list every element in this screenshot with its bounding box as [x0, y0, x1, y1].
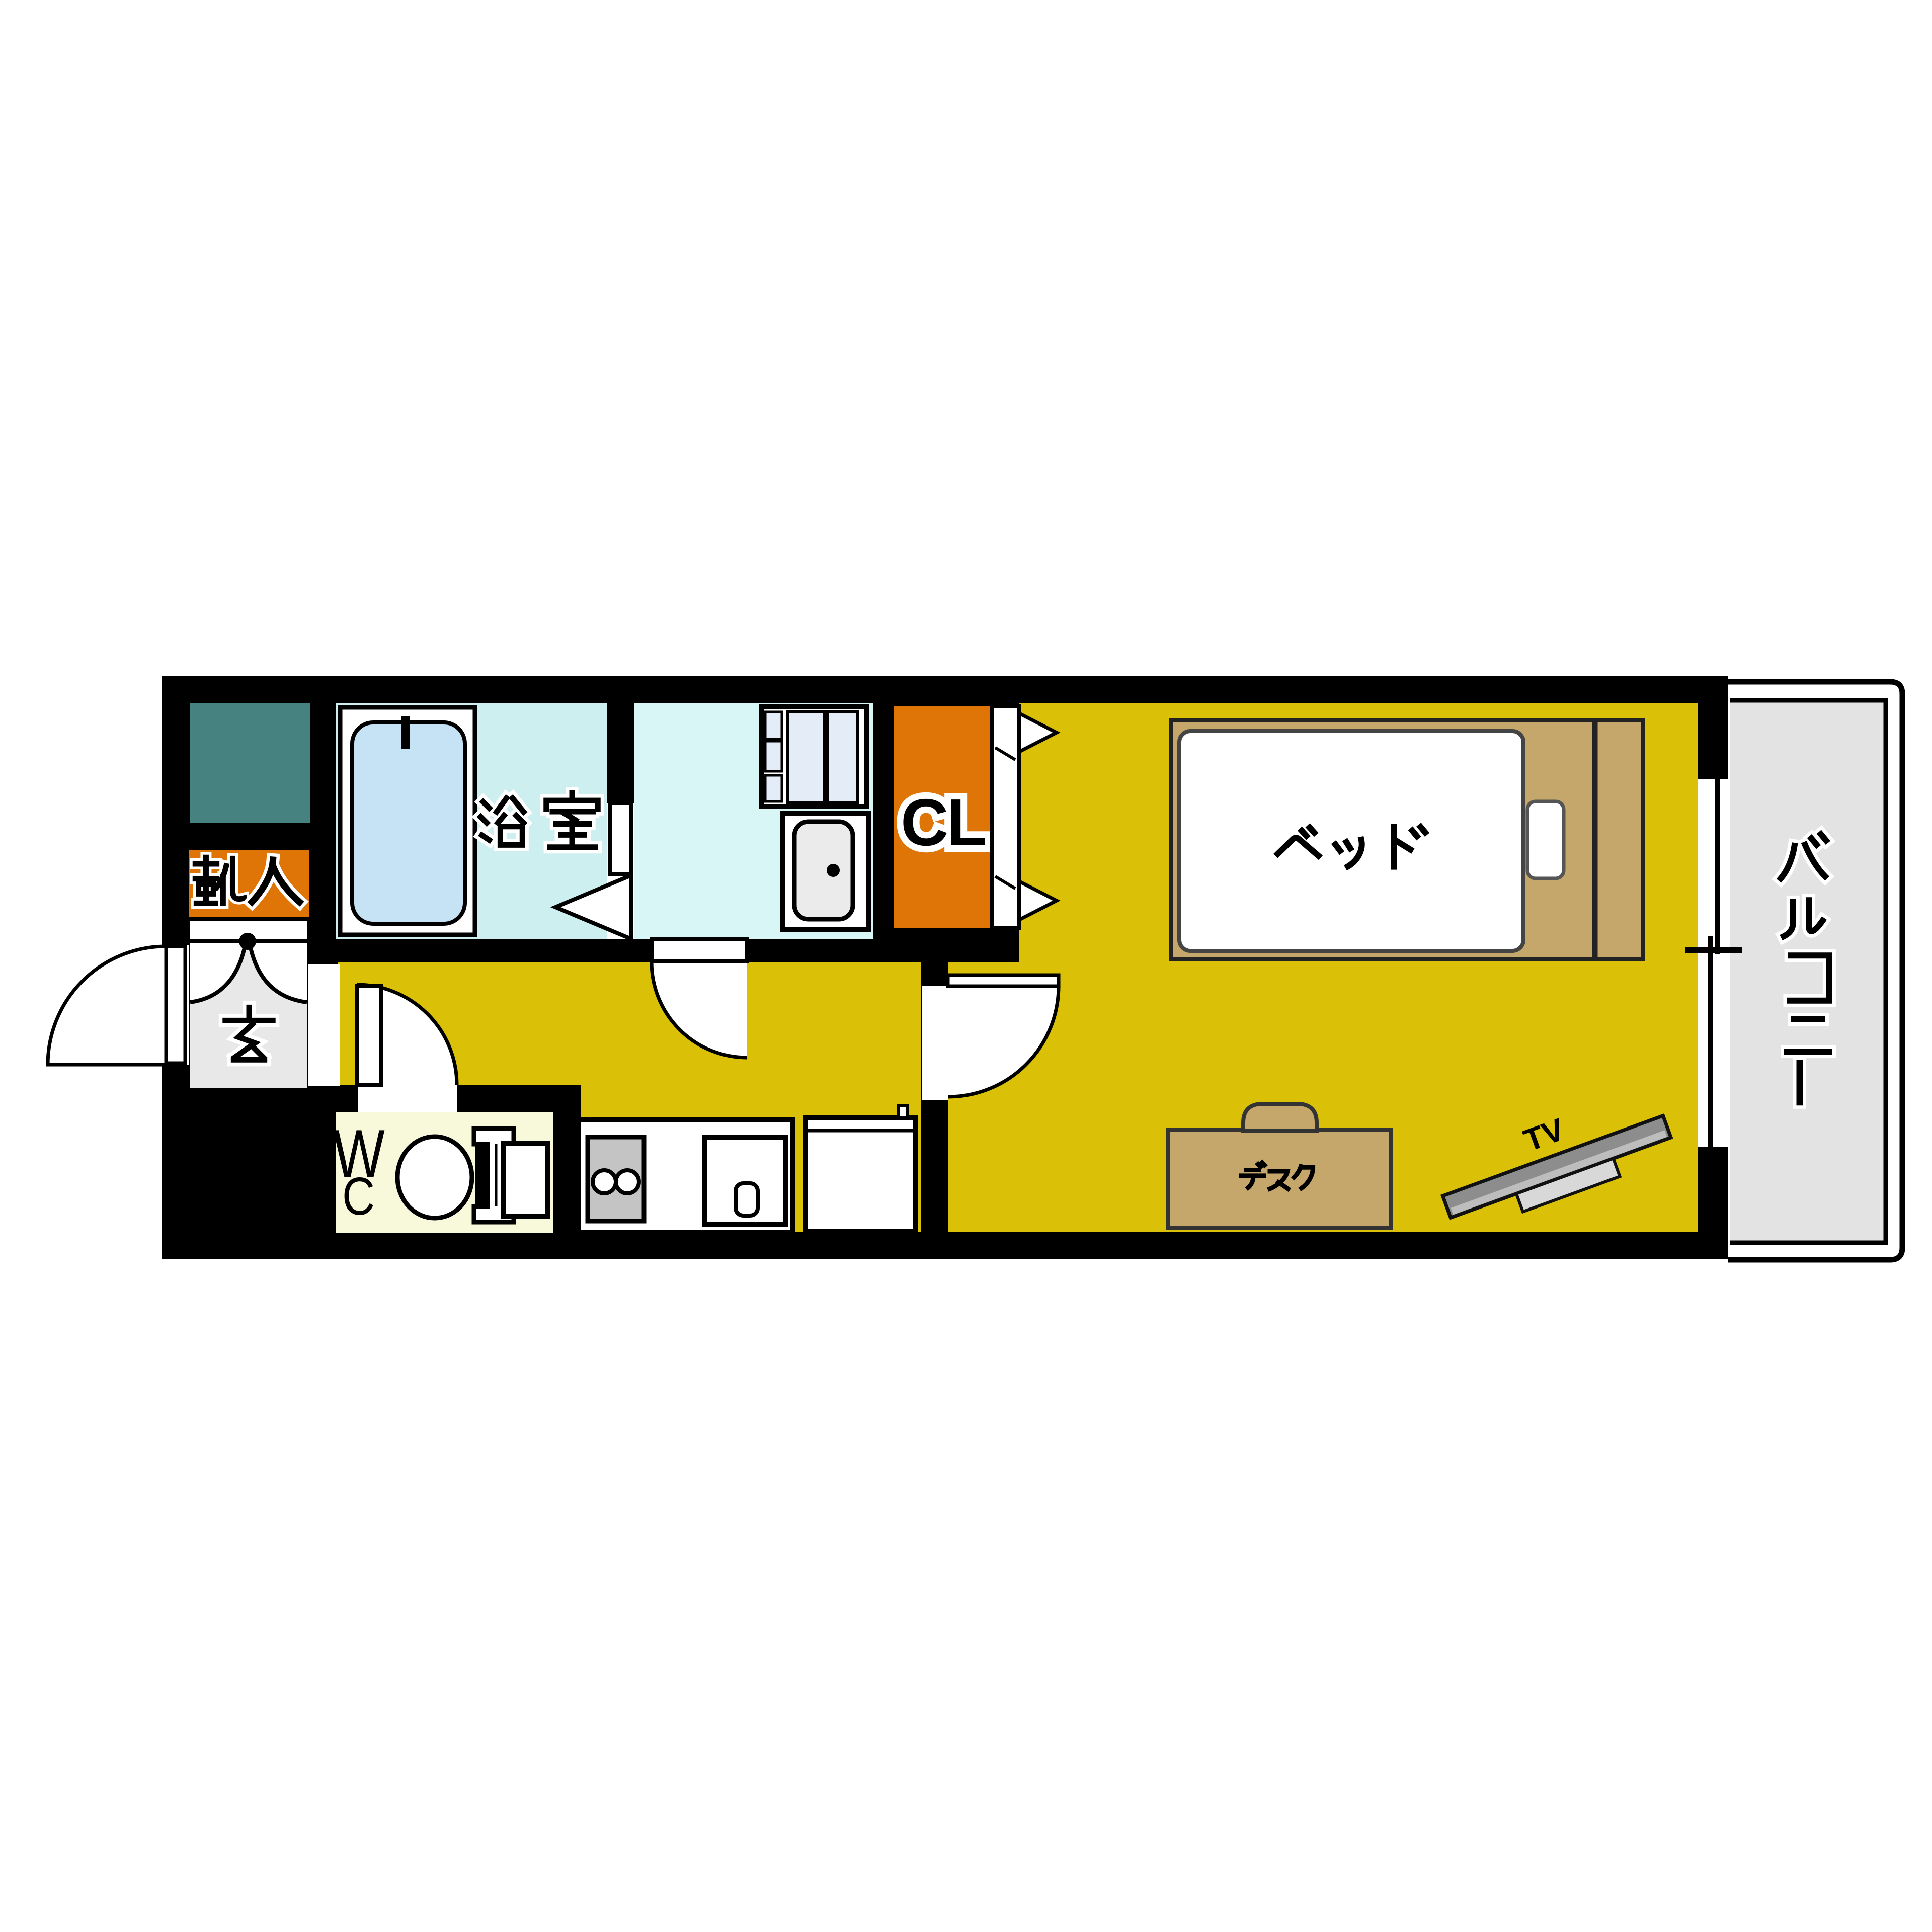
svg-text:C: C — [342, 1166, 375, 1226]
svg-text:CL: CL — [901, 785, 985, 859]
